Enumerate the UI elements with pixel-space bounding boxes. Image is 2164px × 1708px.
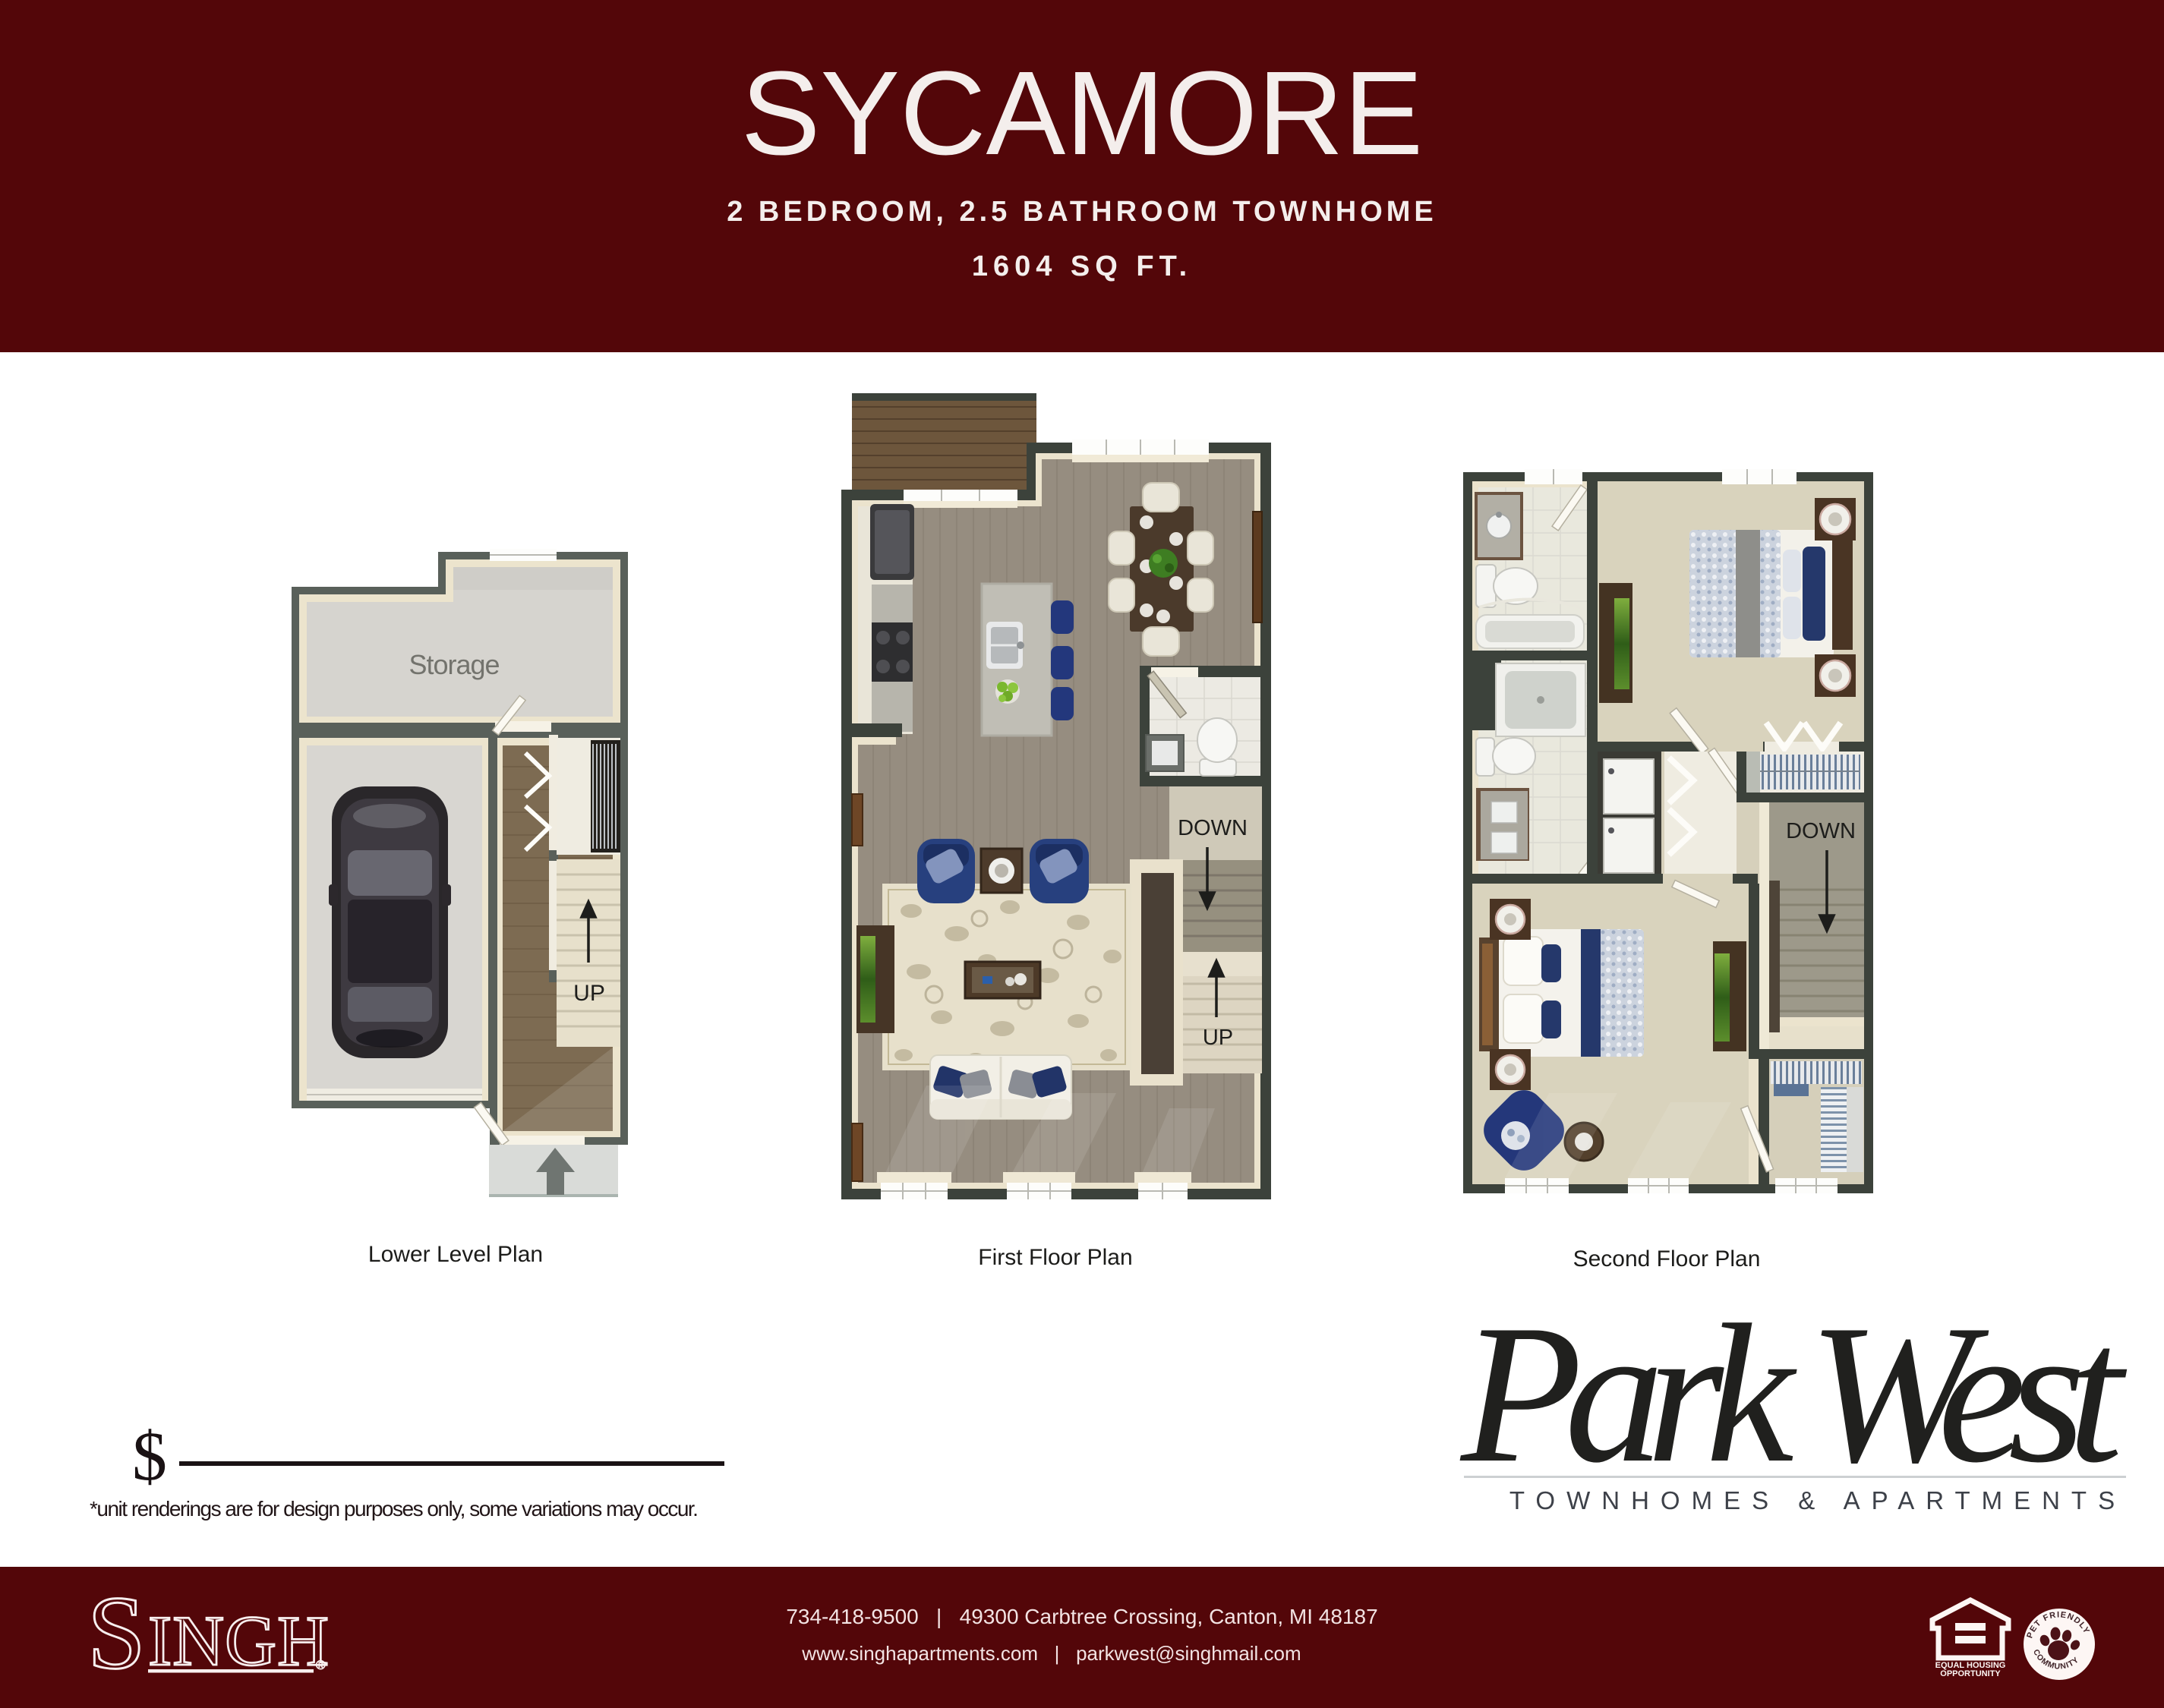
svg-text:Storage: Storage xyxy=(409,649,499,680)
svg-text:Park West: Park West xyxy=(1458,1284,2130,1504)
svg-text:UP: UP xyxy=(573,981,605,1006)
svg-text:OPPORTUNITY: OPPORTUNITY xyxy=(1940,1669,2001,1678)
svg-text:UP: UP xyxy=(1203,1026,1233,1050)
svg-text:DOWN: DOWN xyxy=(1178,816,1248,840)
svg-text:S: S xyxy=(87,1584,146,1684)
svg-text:DOWN: DOWN xyxy=(1786,819,1856,843)
